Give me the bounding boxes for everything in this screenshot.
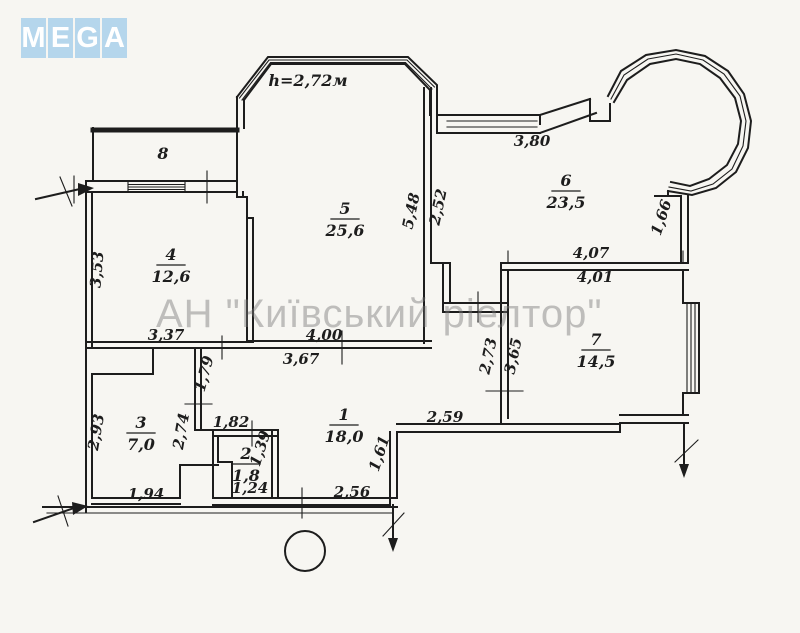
section-arrow-bottom-left	[34, 496, 88, 526]
room-area-label: 14,5	[577, 352, 616, 371]
room-area-label: 23,5	[546, 193, 586, 212]
dimension-label: 2,73	[475, 336, 500, 376]
window-glazing	[687, 303, 695, 393]
left-exterior-wall	[86, 192, 92, 512]
room-area-label: 18,0	[325, 427, 364, 446]
room-number-label: 8	[156, 144, 168, 163]
dimension-label: 2,52	[425, 187, 450, 227]
room-number-label: 1	[338, 405, 349, 424]
dimension-label: 2,56	[333, 483, 371, 501]
passage-wall	[443, 303, 508, 312]
room-number-label: 3	[135, 413, 146, 432]
ceiling-height-note: h=2,72м	[268, 71, 347, 90]
room7-bottom-wall	[620, 415, 688, 432]
wall-to-tower	[540, 99, 610, 133]
room-area-label: 25,6	[325, 221, 365, 240]
dimension-label: 2,59	[426, 408, 464, 426]
floor-plan-svg: 118,021,837,0412,6525,6623,5714,58 3,801…	[0, 0, 800, 633]
window-top	[128, 181, 185, 192]
mega-logo: MEGA	[21, 18, 127, 58]
dimension-label: 3,80	[514, 132, 551, 150]
window-wall-380	[437, 115, 540, 133]
dimension-label: 4,00	[306, 326, 343, 344]
room-number-label: 6	[560, 171, 571, 190]
floorplan-image: 118,021,837,0412,6525,6623,5714,58 3,801…	[0, 0, 800, 633]
dimension-label: 5,48	[399, 191, 424, 231]
dimension-label: 3,67	[283, 350, 320, 368]
dimension-label: 3,37	[148, 326, 185, 344]
dimension-label: 1,66	[647, 197, 676, 238]
dimension-labels: 3,801,664,074,015,482,523,533,374,003,67…	[84, 71, 676, 503]
logo-letter-tile: M	[21, 18, 46, 58]
room-area-label: 7,0	[127, 435, 155, 454]
dimension-label: 3,53	[86, 251, 107, 289]
dimension-label: 1,94	[128, 485, 165, 503]
dimension-label: 2,93	[84, 413, 108, 453]
arrowhead	[388, 538, 398, 552]
tower-bay	[608, 50, 751, 196]
column-circle	[285, 531, 325, 571]
dimension-label: 2,74	[169, 412, 193, 452]
tower-inner	[614, 59, 741, 186]
logo-letter-tile: G	[75, 18, 100, 58]
section-arrow-bottom-mid	[383, 505, 404, 552]
arrowhead	[679, 464, 689, 478]
wall-166	[681, 196, 688, 263]
dimension-label: 4,07	[573, 244, 610, 262]
tower-glazing	[611, 54, 746, 191]
logo-letter-tile: E	[48, 18, 73, 58]
room-number-label: 5	[339, 199, 350, 218]
room-labels: 118,021,837,0412,6525,6623,5714,58	[127, 144, 615, 485]
dimension-label: 1,24	[232, 479, 269, 497]
room-number-label: 4	[165, 245, 176, 264]
room-area-label: 12,6	[152, 267, 191, 286]
dimension-label: 1,39	[246, 428, 275, 469]
dimension-label: 4,01	[577, 268, 614, 286]
room-number-label: 7	[590, 330, 601, 349]
room3-notch	[92, 348, 153, 374]
logo-letter-tile: A	[102, 18, 127, 58]
dimension-label: 1,82	[213, 413, 250, 431]
dimension-label: 3,65	[501, 336, 526, 375]
section-arrow-bottom-right	[675, 424, 698, 478]
room5-left-wall	[237, 97, 253, 342]
window-glazing	[447, 121, 537, 127]
section-arrow-top-left	[36, 189, 80, 199]
